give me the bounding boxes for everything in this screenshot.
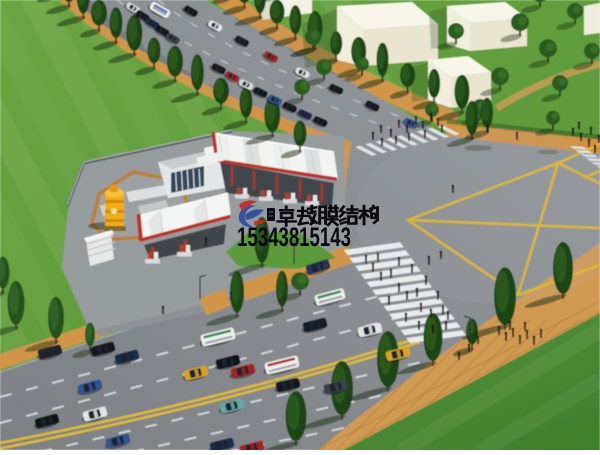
svg-text:15343815143: 15343815143 xyxy=(237,222,351,252)
